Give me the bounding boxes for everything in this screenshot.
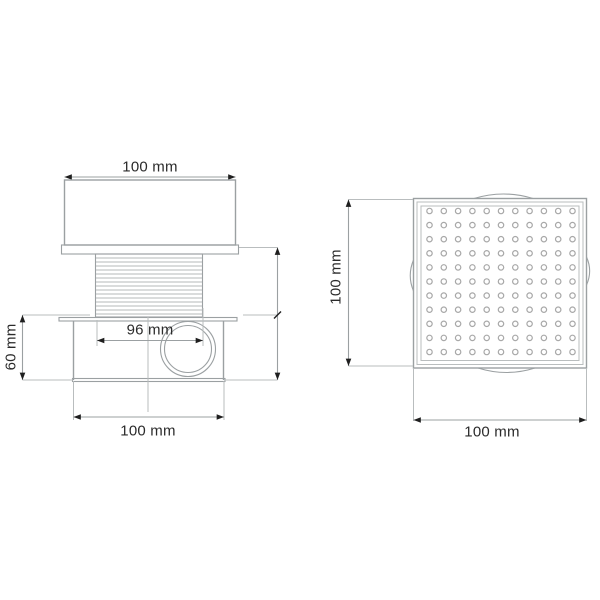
dim-label-side-top-width: 100 mm bbox=[122, 159, 177, 176]
dim-label-grate-width: 100 mm bbox=[464, 424, 519, 441]
dim-label-body-height: 60 mm bbox=[3, 324, 20, 371]
dim-label-side-bottom-width: 100 mm bbox=[120, 423, 175, 440]
thread-lines bbox=[96, 258, 202, 314]
side-view-linework bbox=[23, 177, 282, 420]
side-grate-flange bbox=[62, 245, 239, 254]
dim-label-thread-width: 96 mm bbox=[127, 322, 174, 339]
top-view-linework bbox=[349, 194, 590, 421]
drawing-linework bbox=[0, 0, 600, 600]
side-grate-box bbox=[65, 180, 236, 245]
grate-hole-grid bbox=[427, 208, 575, 354]
side-body-bottom-plate bbox=[73, 379, 226, 382]
technical-drawing-canvas: 100 mm 96 mm 60 mm 100 mm 100 mm 100 mm bbox=[0, 0, 600, 600]
dim-label-grate-height: 100 mm bbox=[328, 249, 345, 304]
